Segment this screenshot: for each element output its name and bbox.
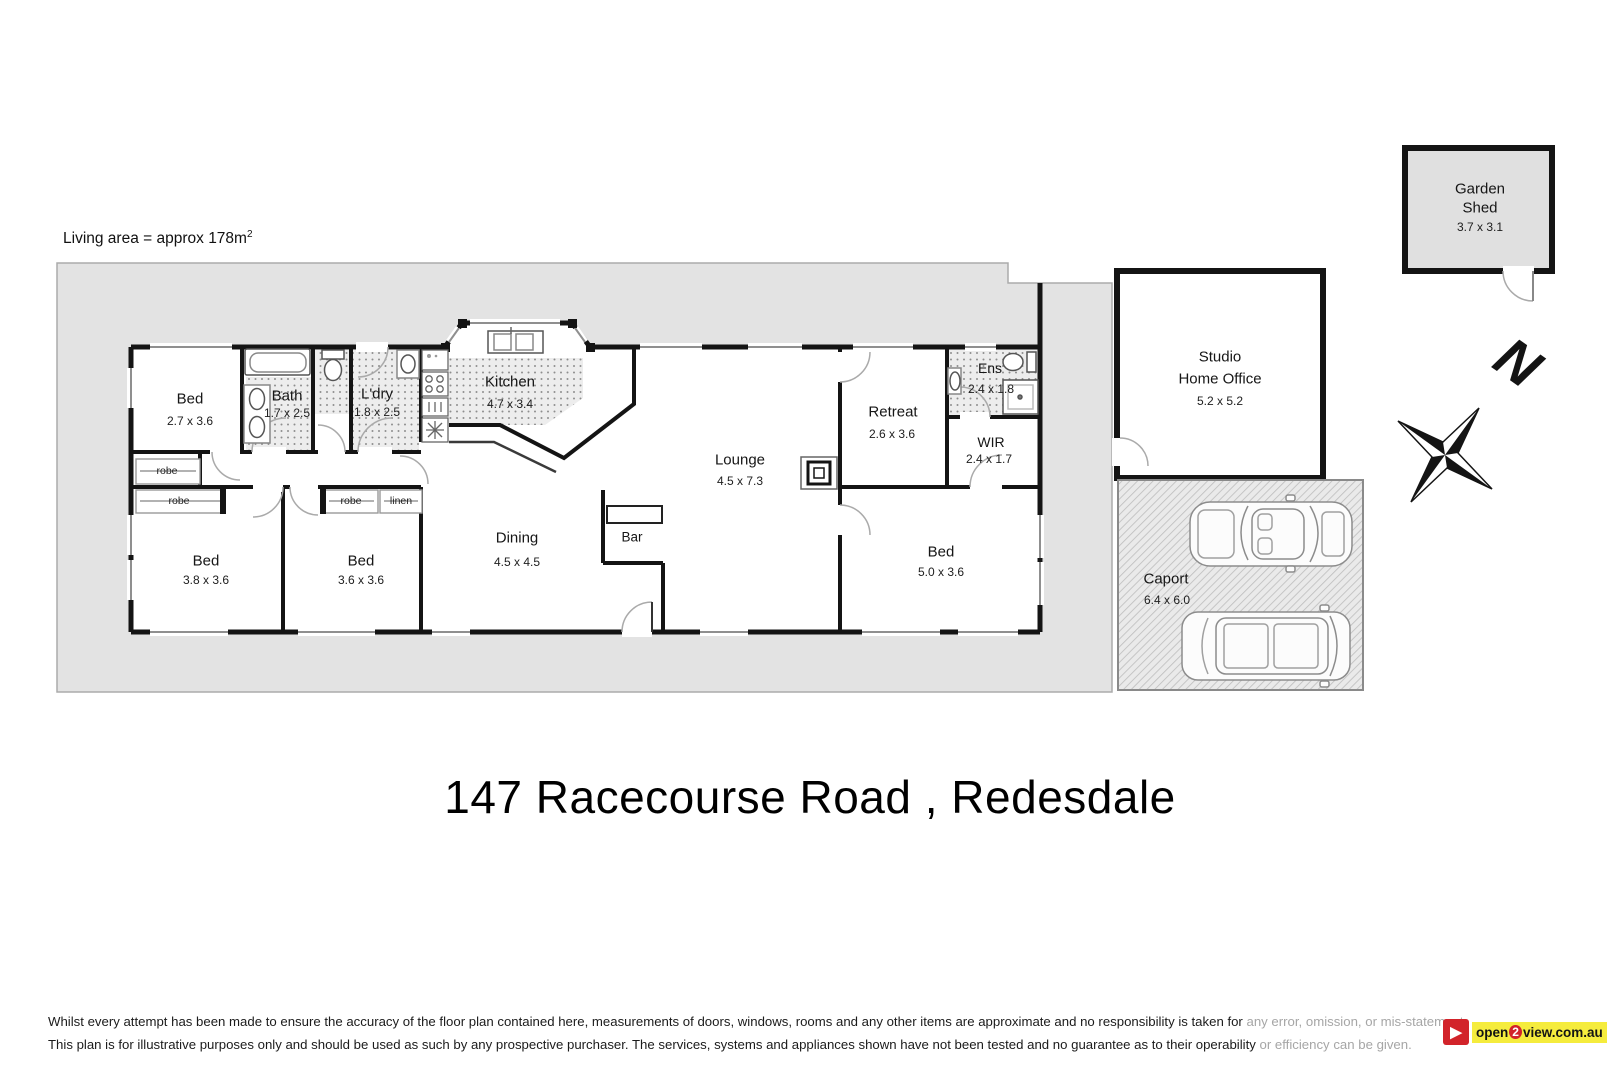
kitchen-sink-bench [488, 327, 543, 353]
room-dims-bed4: 5.0 x 3.6 [918, 566, 964, 578]
fireplace [801, 457, 837, 489]
ensuite-toilet [1003, 352, 1036, 372]
closet-label-robe3: robe [340, 496, 361, 507]
room-label-caport: Caport [1143, 572, 1188, 587]
closet-label-linen: linen [390, 496, 412, 507]
compass-north-label: N [1483, 325, 1554, 401]
room-label-bed2: Bed [193, 554, 220, 569]
room-dims-retreat: 2.6 x 3.6 [869, 428, 915, 440]
room-label-retreat: Retreat [868, 405, 917, 420]
room-dims-dining: 4.5 x 4.5 [494, 556, 540, 568]
floorplan-page: N Living area = approx 178m2 Bed 2.7 x 3… [0, 0, 1620, 1080]
room-dims-bed2: 3.8 x 3.6 [183, 574, 229, 586]
room-dims-ens: 2.4 x 1.8 [968, 383, 1014, 395]
logo-text: open2view.com.au [1472, 1022, 1607, 1043]
bathtub [245, 349, 310, 375]
room-dims-bed1: 2.7 x 3.6 [167, 415, 213, 427]
open2view-logo: ▶ open2view.com.au [1443, 1018, 1607, 1046]
room-label-laundry: L'dry [361, 387, 393, 402]
room-dims-bed3: 3.6 x 3.6 [338, 574, 384, 586]
compass-rose: N [1398, 325, 1554, 502]
disclaimer-line-1: Whilst every attempt has been made to en… [48, 1011, 1467, 1034]
room-label-ens: Ens [978, 361, 1002, 375]
closet-label-robe1: robe [156, 466, 177, 477]
car-1 [1190, 495, 1352, 572]
room-dims-studio: 5.2 x 5.2 [1197, 395, 1243, 407]
ensuite-basin [948, 368, 961, 394]
cooktop-icon [422, 372, 448, 396]
room-label-bed4: Bed [928, 545, 955, 560]
kitchen-appliance-column [422, 350, 448, 442]
room-label-dining: Dining [496, 531, 539, 546]
oven-icon [422, 398, 448, 416]
room-dims-caport: 6.4 x 6.0 [1144, 594, 1190, 606]
disclaimer: Whilst every attempt has been made to en… [48, 1011, 1467, 1056]
page-title: 147 Racecourse Road , Redesdale [0, 770, 1620, 824]
room-dims-bath: 1.7 x 2.5 [264, 407, 310, 419]
room-label-studio-line2: Home Office [1178, 372, 1261, 387]
room-label-lounge: Lounge [715, 453, 765, 468]
room-dims-laundry: 1.8 x 2.5 [354, 406, 400, 418]
laundry-trough [397, 350, 419, 378]
room-label-shed-line2: Shed [1462, 201, 1497, 216]
wc-toilet [322, 350, 344, 381]
fan-icon [422, 418, 448, 442]
closet-label-robe2: robe [168, 496, 189, 507]
car-2 [1182, 605, 1350, 687]
room-dims-kitchen: 4.7 x 3.4 [487, 398, 533, 410]
room-label-bed3: Bed [348, 554, 375, 569]
room-label-bath: Bath [272, 389, 303, 404]
room-label-bar: Bar [621, 530, 642, 544]
camera-icon: ▶ [1443, 1019, 1469, 1045]
floorplan-drawing: N [0, 0, 1620, 1080]
room-label-shed-line1: Garden [1455, 182, 1505, 197]
room-label-bed1: Bed [177, 392, 204, 407]
room-label-studio-line1: Studio [1199, 350, 1242, 365]
room-label-wir: WIR [977, 435, 1004, 449]
room-label-kitchen: Kitchen [485, 375, 535, 390]
room-dims-lounge: 4.5 x 7.3 [717, 475, 763, 487]
living-area-note: Living area = approx 178m2 [63, 229, 253, 248]
bar-counter [607, 506, 662, 523]
room-dims-wir: 2.4 x 1.7 [966, 453, 1012, 465]
disclaimer-line-2: This plan is for illustrative purposes o… [48, 1034, 1467, 1057]
room-dims-shed: 3.7 x 3.1 [1457, 221, 1503, 233]
